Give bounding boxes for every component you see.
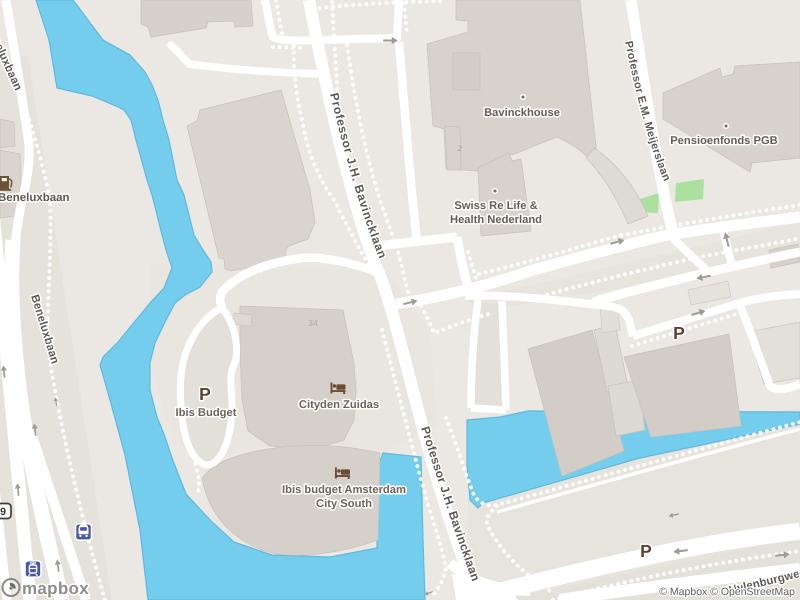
svg-text:P: P [640,541,652,561]
svg-text:9: 9 [0,506,6,518]
svg-text:Health Nederland: Health Nederland [450,214,542,226]
svg-text:P: P [673,323,685,343]
svg-text:34: 34 [308,318,318,328]
svg-text:Beneluxbaan: Beneluxbaan [0,192,70,204]
svg-text:P: P [199,384,211,404]
svg-text:Ibis Budget: Ibis Budget [176,407,237,419]
svg-text:Ibis budget Amsterdam: Ibis budget Amsterdam [282,484,406,496]
svg-text:City South: City South [316,498,372,510]
svg-text:Swiss Re Life &: Swiss Re Life & [454,200,537,212]
svg-text:Cityden Zuidas: Cityden Zuidas [299,399,379,411]
svg-text:mapbox: mapbox [22,579,89,598]
svg-text:Pensioenfonds PGB: Pensioenfonds PGB [670,135,778,147]
svg-text:Bavinckhouse: Bavinckhouse [484,107,560,119]
svg-text:2: 2 [458,144,463,153]
svg-text:© Mapbox © OpenStreetMap: © Mapbox © OpenStreetMap [659,586,795,598]
